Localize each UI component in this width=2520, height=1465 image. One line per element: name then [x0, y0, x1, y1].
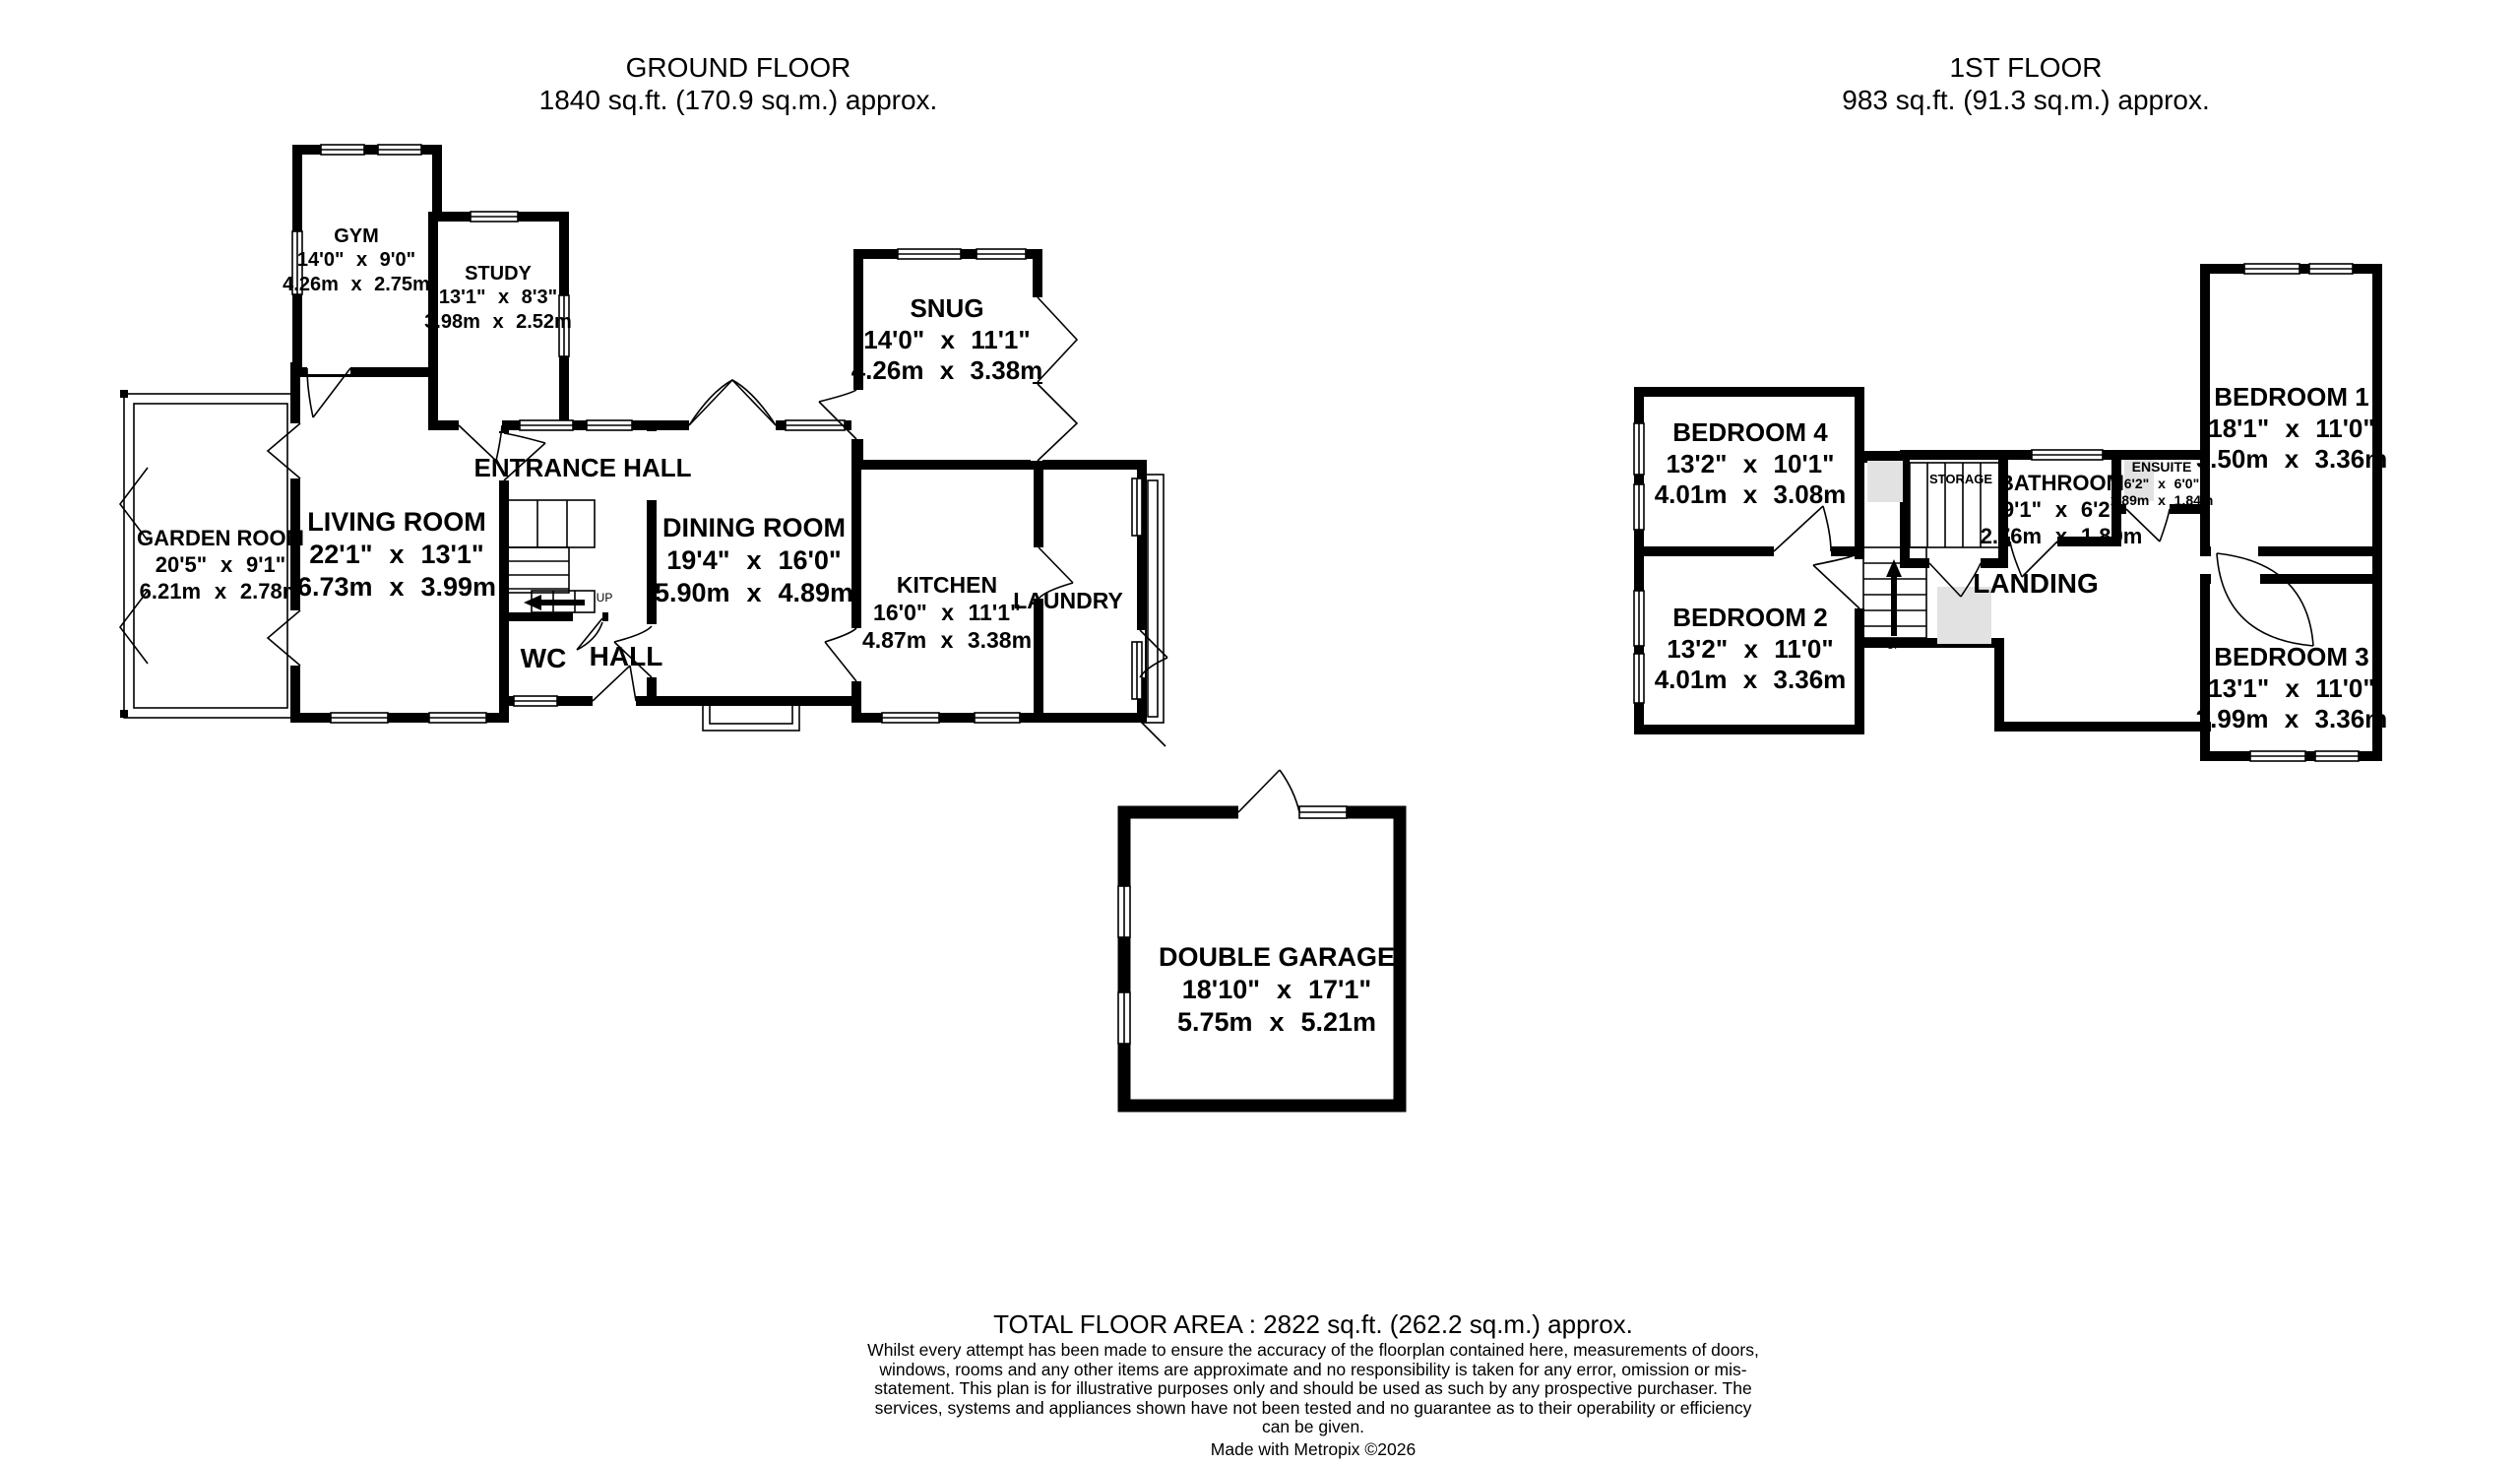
room-metric: 4.87m x 3.38m — [862, 626, 1032, 654]
landing-wall — [1994, 638, 2004, 732]
room-label-landing: LANDING — [1973, 567, 2099, 601]
room-name: BEDROOM 1 — [2196, 382, 2388, 414]
disclaimer-text: Whilst every attempt has been made to en… — [860, 1341, 1766, 1437]
room-metric: 5.90m x 4.89m — [655, 577, 853, 609]
landing-wall — [1994, 722, 2211, 732]
room-label-garden-room: GARDEN ROOM 20'5" x 9'1" 6.21m x 2.78m — [137, 526, 304, 605]
total-floor-area: TOTAL FLOOR AREA : 2822 sq.ft. (262.2 sq… — [993, 1309, 1633, 1340]
room-metric: 1.89m x 1.84m — [2110, 492, 2214, 509]
room-imperial: 13'2" x 10'1" — [1655, 449, 1847, 480]
up-text: UP — [1886, 640, 1901, 652]
outer-wall — [2372, 546, 2382, 584]
room-label-laundry: LAUNDRY — [1013, 587, 1123, 614]
room-imperial: 18'10" x 17'1" — [1159, 974, 1395, 1006]
room-name: BEDROOM 4 — [1655, 417, 1847, 449]
room-name: ENTRANCE HALL — [474, 453, 692, 484]
room-imperial: 14'0" x 11'1" — [851, 325, 1043, 356]
room-name: HALL — [590, 640, 663, 673]
room-metric: 5.50m x 3.36m — [2196, 444, 2388, 476]
room-imperial: 14'0" x 9'0" — [283, 248, 430, 272]
room-label-wc: WC — [521, 642, 567, 675]
garage-plan — [1118, 770, 1400, 1106]
room-name: BEDROOM 3 — [2196, 642, 2388, 673]
first-floor-title-text: 1ST FLOOR — [1842, 51, 2210, 84]
room-label-snug: SNUG 14'0" x 11'1" 4.26m x 3.38m — [851, 293, 1043, 387]
room-imperial: 13'2" x 11'0" — [1655, 634, 1847, 666]
room-name: LANDING — [1973, 567, 2099, 601]
room-label-hall: HALL — [590, 640, 663, 673]
room-metric: 4.26m x 3.38m — [851, 355, 1043, 387]
up-arrow-icon — [1886, 559, 1902, 636]
room-imperial: 6'2" x 6'0" — [2110, 476, 2214, 492]
room-imperial: 13'1" x 8'3" — [424, 286, 572, 309]
floorplan-page: GROUND FLOOR 1840 sq.ft. (170.9 sq.m.) a… — [0, 0, 2520, 1465]
room-metric: 4.01m x 3.08m — [1655, 479, 1847, 511]
up-label: UP — [597, 591, 613, 605]
room-name: GARDEN ROOM — [137, 526, 304, 552]
room-metric: 6.21m x 2.78m — [137, 579, 304, 605]
room-metric: 3.99m x 3.36m — [2196, 704, 2388, 735]
room-label-gym: GYM 14'0" x 9'0" 4.26m x 2.75m — [283, 224, 430, 296]
up-text: UP — [597, 591, 613, 605]
room-label-kitchen: KITCHEN 16'0" x 11'1" 4.87m x 3.38m — [862, 571, 1032, 654]
room-imperial: 19'4" x 16'0" — [655, 544, 853, 577]
room-name: LIVING ROOM — [297, 506, 496, 539]
room-label-living-room: LIVING ROOM 22'1" x 13'1" 6.73m x 3.99m — [297, 506, 496, 604]
room-imperial: 20'5" x 9'1" — [137, 552, 304, 579]
room-label-bedroom4: BEDROOM 4 13'2" x 10'1" 4.01m x 3.08m — [1655, 417, 1847, 511]
up-label: UP — [1886, 640, 1901, 653]
room-imperial: 22'1" x 13'1" — [297, 539, 496, 571]
first-floor-area-text: 983 sq.ft. (91.3 sq.m.) approx. — [1842, 84, 2210, 116]
room-metric: 4.01m x 3.36m — [1655, 665, 1847, 696]
metropix-credit: Made with Metropix ©2026 — [1211, 1439, 1416, 1460]
room-name: GYM — [283, 224, 430, 248]
room-label-bedroom1: BEDROOM 1 18'1" x 11'0" 5.50m x 3.36m — [2196, 382, 2388, 476]
door-opening — [1238, 802, 1299, 820]
floorplan-drawing — [0, 0, 2520, 1465]
room-label-study: STUDY 13'1" x 8'3" 3.98m x 2.52m — [424, 262, 572, 334]
ground-floor-title: GROUND FLOOR 1840 sq.ft. (170.9 sq.m.) a… — [539, 51, 938, 116]
room-label-bedroom2: BEDROOM 2 13'2" x 11'0" 4.01m x 3.36m — [1655, 603, 1847, 696]
room-imperial: 16'0" x 11'1" — [862, 599, 1032, 626]
room-metric: 4.26m x 2.75m — [283, 273, 430, 296]
room-name: KITCHEN — [862, 571, 1032, 599]
room-label-double-garage: DOUBLE GARAGE 18'10" x 17'1" 5.75m x 5.2… — [1159, 941, 1395, 1039]
room-name: DINING ROOM — [655, 512, 853, 544]
room-label-entrance-hall: ENTRANCE HALL — [474, 453, 692, 484]
room-name: STUDY — [424, 262, 572, 286]
ground-floor-area-text: 1840 sq.ft. (170.9 sq.m.) approx. — [539, 84, 938, 116]
room-name: DOUBLE GARAGE — [1159, 941, 1395, 974]
room-imperial: 18'1" x 11'0" — [2196, 414, 2388, 445]
room-label-dining-room: DINING ROOM 19'4" x 16'0" 5.90m x 4.89m — [655, 512, 853, 609]
room-imperial: 13'1" x 11'0" — [2196, 673, 2388, 705]
room-label-bedroom3: BEDROOM 3 13'1" x 11'0" 3.99m x 3.36m — [2196, 642, 2388, 735]
room-metric: 5.75m x 5.21m — [1159, 1006, 1395, 1039]
room-metric: 3.98m x 2.52m — [424, 310, 572, 334]
room-metric: 2.76m x 1.89m — [1981, 524, 2143, 550]
room-metric: 6.73m x 3.99m — [297, 571, 496, 604]
room-name: SNUG — [851, 293, 1043, 325]
room-name: WC — [521, 642, 567, 675]
ground-floor-title-text: GROUND FLOOR — [539, 51, 938, 84]
first-floor-title: 1ST FLOOR 983 sq.ft. (91.3 sq.m.) approx… — [1842, 51, 2210, 116]
room-name: BEDROOM 2 — [1655, 603, 1847, 634]
room-name: LAUNDRY — [1013, 587, 1123, 614]
